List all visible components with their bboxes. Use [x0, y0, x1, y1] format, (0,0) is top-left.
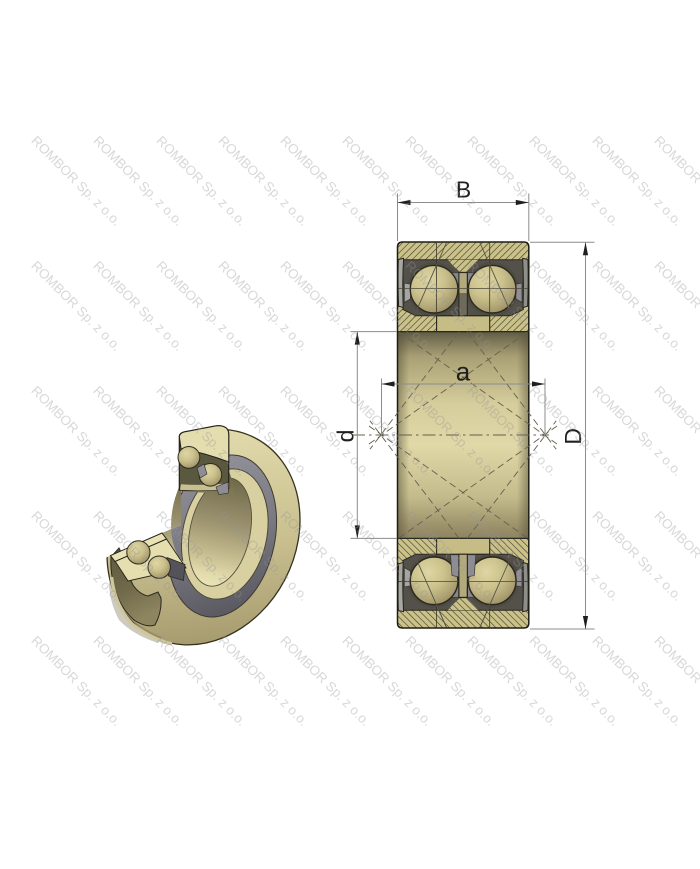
svg-text:a: a	[456, 357, 471, 387]
